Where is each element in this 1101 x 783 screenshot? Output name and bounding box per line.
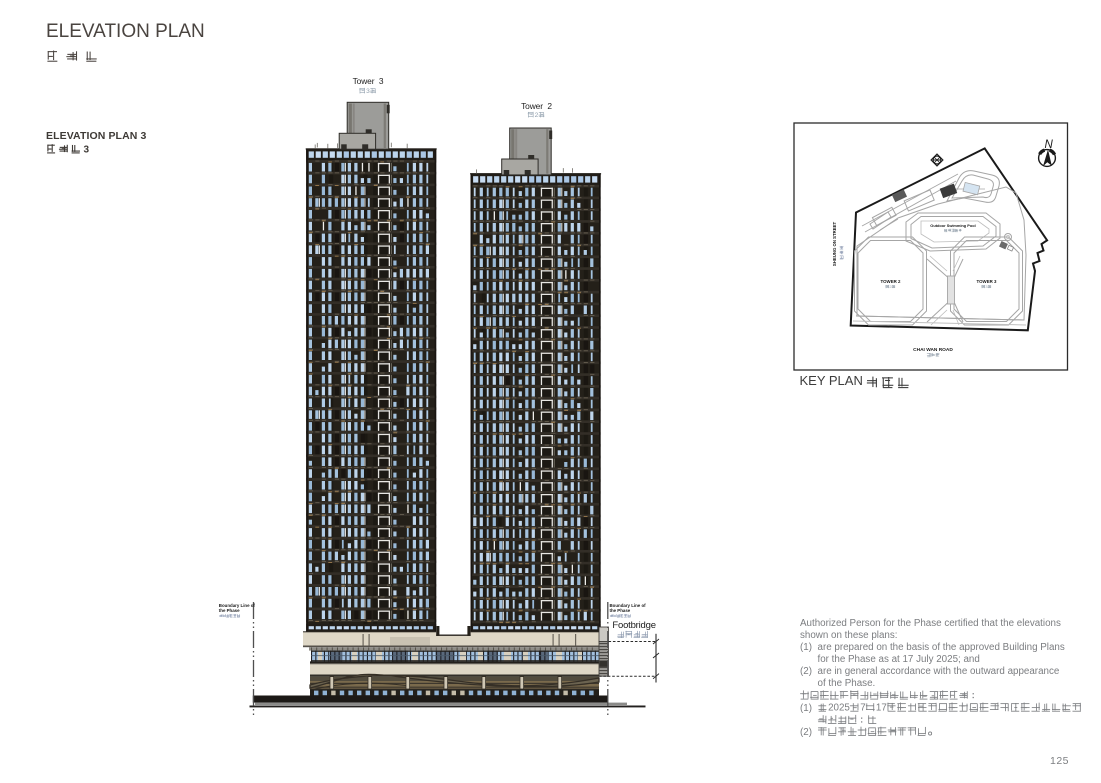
svg-text:Outdoor Swimming Pool: Outdoor Swimming Pool (930, 223, 975, 228)
svg-text:2: 2 (889, 285, 891, 289)
svg-text:2: 2 (535, 112, 539, 119)
svg-text:SHEUNG ON STREET: SHEUNG ON STREET (832, 222, 837, 267)
svg-text:3: 3 (985, 285, 987, 289)
svg-text:CHAI WAN ROAD: CHAI WAN ROAD (913, 347, 953, 353)
svg-text:(2): (2) (800, 727, 812, 738)
svg-text:N: N (1045, 139, 1054, 151)
svg-text:7: 7 (881, 703, 886, 714)
svg-text:5: 5 (844, 703, 850, 714)
svg-text:TOWER 2: TOWER 2 (881, 279, 901, 284)
svg-text:TOWER 3: TOWER 3 (977, 279, 997, 284)
svg-text:3: 3 (366, 88, 370, 95)
svg-text:(1): (1) (800, 703, 812, 714)
svg-text:7: 7 (860, 703, 865, 714)
svg-text:3: 3 (84, 144, 90, 155)
